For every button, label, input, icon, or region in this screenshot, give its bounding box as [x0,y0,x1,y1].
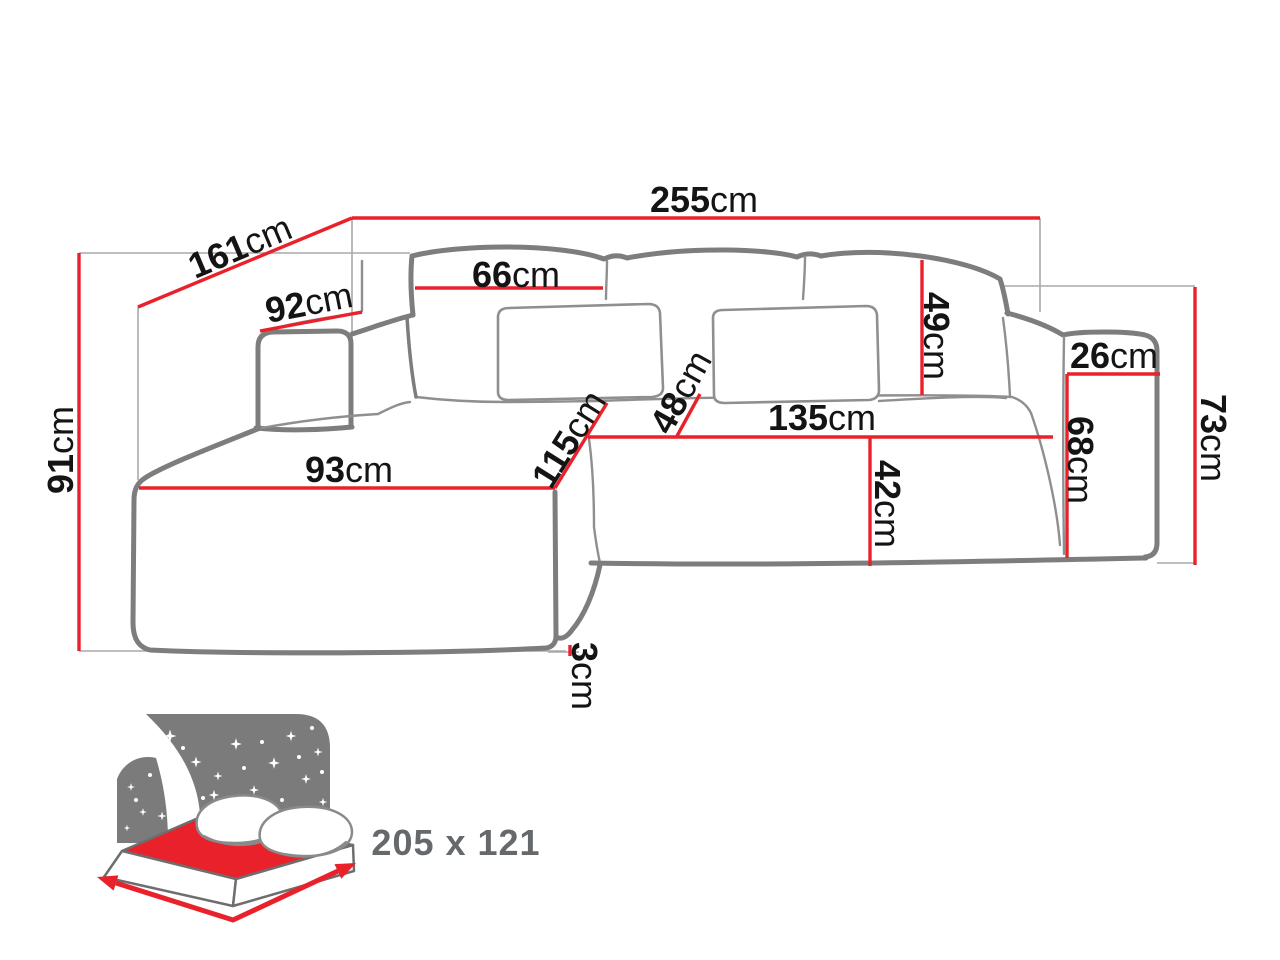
dim-unit: cm [1193,434,1234,482]
dim-label-135: 135cm [768,400,876,436]
dimension-diagram: 255cm 161cm 92cm 66cm 49cm 26cm 73cm 68c… [0,0,1280,960]
dim-label-26: 26cm [1070,338,1158,374]
sofa-pillow-right [713,306,879,403]
dim-label-49: 49cm [918,292,954,380]
dim-value: 73 [1193,394,1234,434]
sofa-cushion-split-1 [606,261,607,299]
dim-value: 93 [305,449,345,490]
dim-value: 68 [1060,416,1101,456]
dim-unit: cm [1110,335,1158,376]
sofa-inner-corner [556,565,600,638]
dim-label-66: 66cm [472,257,560,293]
dim-value: 255 [650,179,710,220]
dim-value: 42 [867,460,908,500]
dimension-lines [79,218,1195,656]
sofa-seat-left-crease [262,402,410,428]
dim-value: 49 [916,292,957,332]
sofa-seat-front-edge [416,395,1060,545]
sofa-cushion-right-edge [1003,318,1010,397]
dim-unit: cm [916,332,957,380]
headboard-left-shape [117,757,168,843]
dim-unit: cm [512,254,560,295]
dim-label-91: 91cm [43,406,79,494]
dim-value: 66 [472,254,512,295]
sofa-left-arm-front [258,331,351,428]
arrow-head-left [97,875,118,890]
dim-value: 91 [40,454,81,494]
dim-label-42: 42cm [869,460,905,548]
sleeping-area-size-label: 205 x 121 [371,825,540,861]
dim-unit: cm [345,449,393,490]
dim-label-93: 93cm [305,452,393,488]
sofa-cushion-left-edge [407,317,416,397]
dim-unit: cm [1060,456,1101,504]
sofa-cushion-split-2 [803,257,805,299]
bed-sleeping-area-icon [97,714,356,920]
dim-value: 3 [564,642,605,662]
dim-value: 135 [768,397,828,438]
dim-unit: cm [564,662,605,710]
dim-unit: cm [710,179,758,220]
dim-label-255: 255cm [650,182,758,218]
dim-unit: cm [40,406,81,454]
dim-unit: cm [828,397,876,438]
sofa-chaise-right-crease [589,439,600,563]
sofa-backrest-left-corner [411,256,413,315]
dim-value: 26 [1070,335,1110,376]
sofa-left-arm-top-edge [352,315,413,334]
dim-unit: cm [867,500,908,548]
dim-label-68: 68cm [1062,416,1098,504]
dim-label-73: 73cm [1195,394,1231,482]
dim-label-3: 3cm [566,642,602,710]
sofa-cushion-bottom-right [879,397,1006,401]
